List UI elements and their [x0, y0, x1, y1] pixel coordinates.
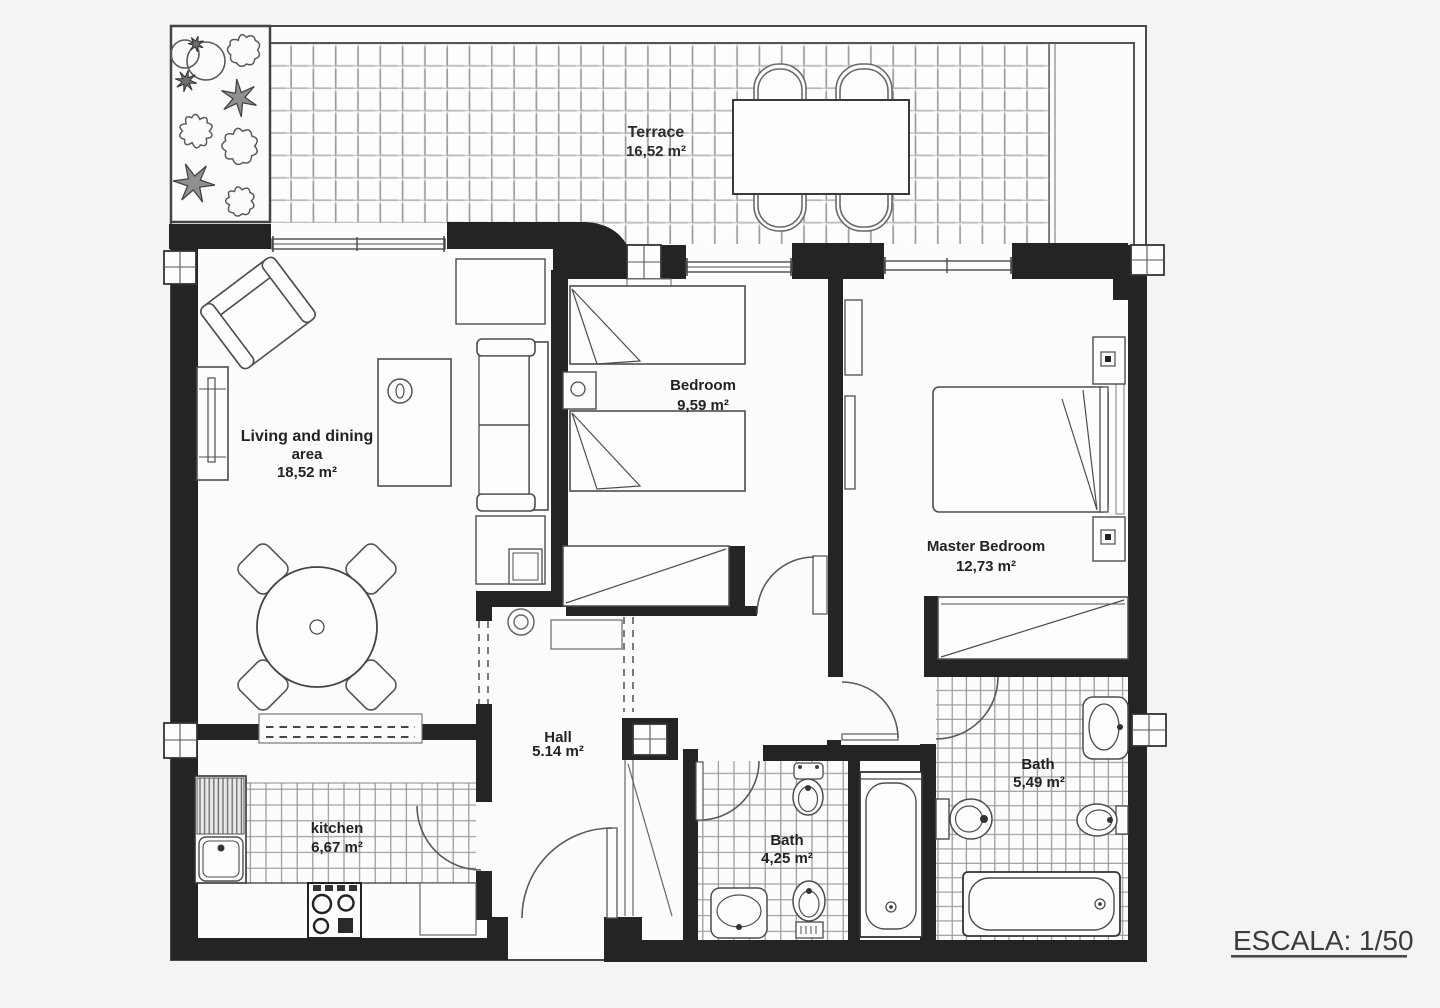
svg-text:Master Bedroom: Master Bedroom: [927, 538, 1045, 555]
svg-text:Living and dining: Living and dining: [241, 428, 373, 445]
svg-text:5.14 m²: 5.14 m²: [532, 743, 584, 760]
svg-text:4,25 m²: 4,25 m²: [761, 850, 813, 867]
svg-text:Terrace: Terrace: [628, 124, 685, 141]
svg-text:5,49 m²: 5,49 m²: [1013, 774, 1065, 791]
svg-text:Bedroom: Bedroom: [670, 377, 736, 394]
svg-text:Bath: Bath: [1021, 756, 1054, 773]
svg-text:9,59 m²: 9,59 m²: [677, 397, 729, 414]
svg-text:18,52 m²: 18,52 m²: [277, 464, 337, 481]
svg-text:kitchen: kitchen: [311, 820, 364, 837]
svg-text:ESCALA: 1/50: ESCALA: 1/50: [1233, 925, 1414, 956]
svg-text:area: area: [292, 446, 324, 463]
svg-text:Bath: Bath: [770, 832, 803, 849]
svg-text:16,52 m²: 16,52 m²: [626, 143, 686, 160]
svg-text:6,67 m²: 6,67 m²: [311, 839, 363, 856]
svg-text:12,73 m²: 12,73 m²: [956, 558, 1016, 575]
